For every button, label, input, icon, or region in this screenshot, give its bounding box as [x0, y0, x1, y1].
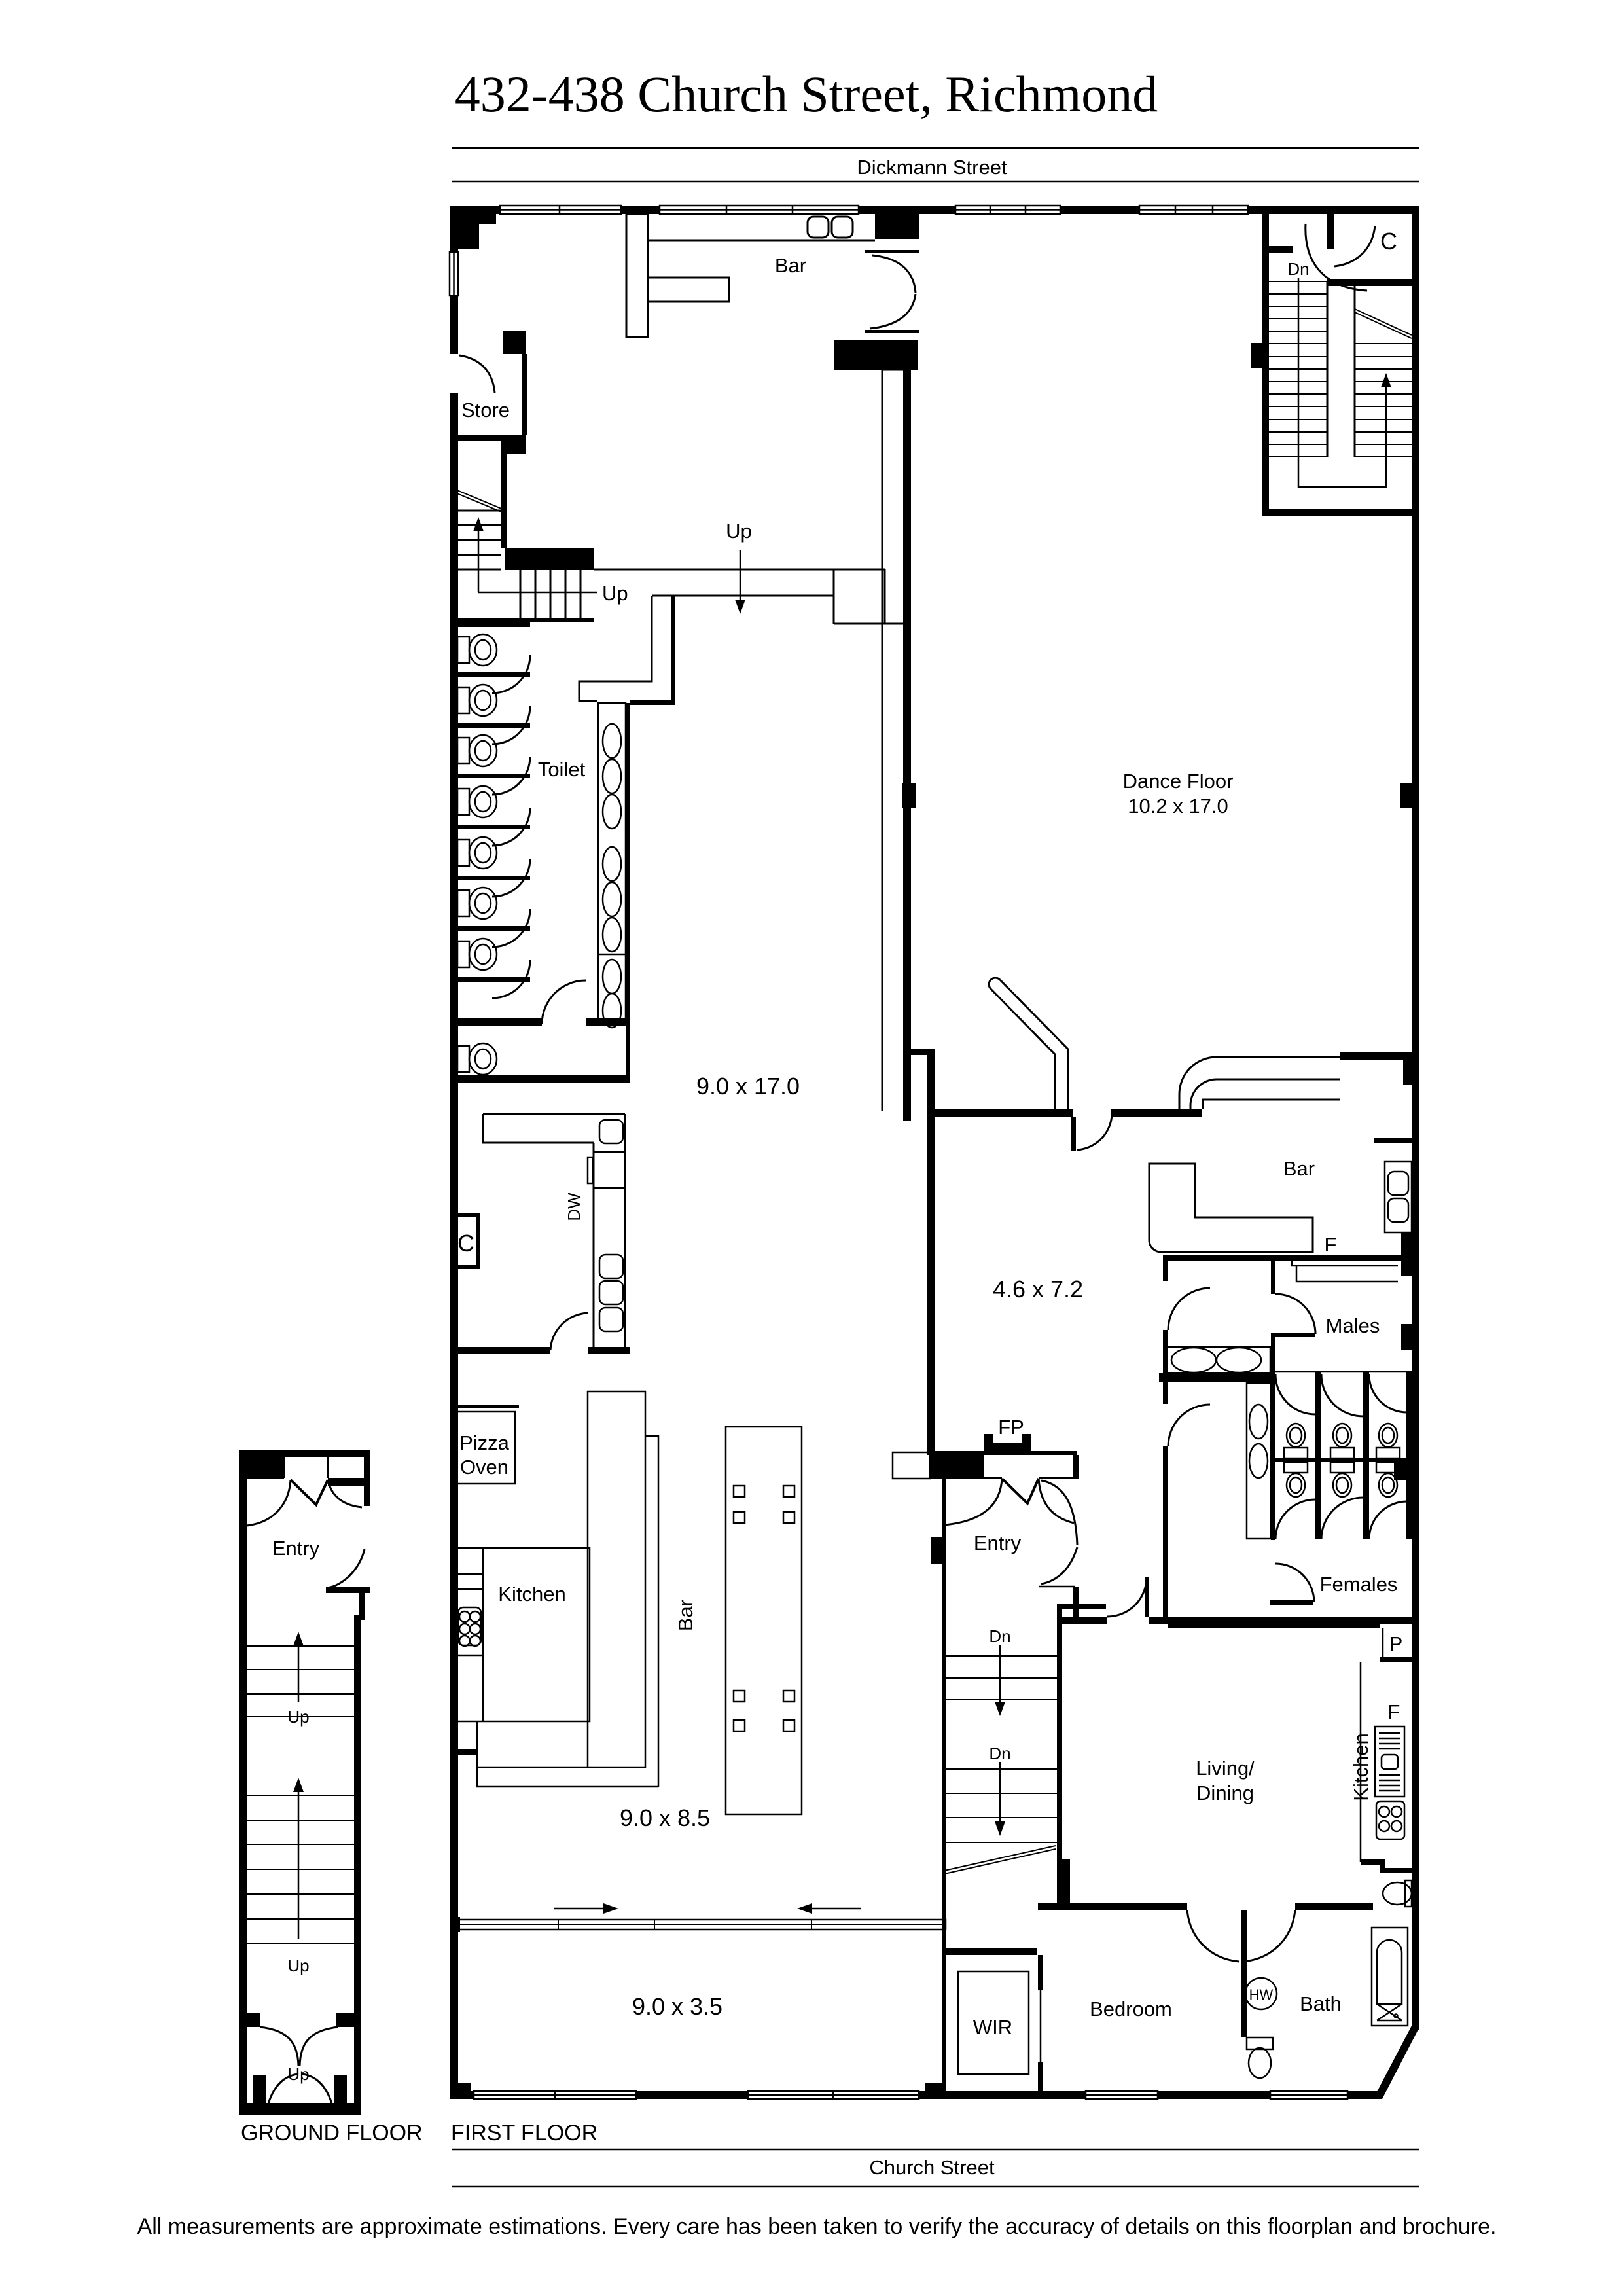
- svg-text:C: C: [457, 1230, 474, 1257]
- svg-text:Females: Females: [1320, 1573, 1398, 1596]
- svg-text:Entry: Entry: [974, 1532, 1022, 1554]
- svg-text:Up: Up: [602, 582, 628, 605]
- svg-text:Up: Up: [726, 520, 752, 543]
- svg-text:DW: DW: [564, 1193, 584, 1221]
- svg-text:Kitchen: Kitchen: [1349, 1733, 1372, 1801]
- svg-text:All measurements are approxima: All measurements are approximate estimat…: [137, 2214, 1497, 2239]
- svg-text:Store: Store: [461, 399, 510, 422]
- svg-text:4.6 x 7.2: 4.6 x 7.2: [993, 1276, 1083, 1302]
- svg-text:WIR: WIR: [973, 2016, 1012, 2039]
- svg-text:P: P: [1389, 1632, 1403, 1655]
- svg-text:F: F: [1388, 1700, 1400, 1723]
- svg-text:Bar: Bar: [674, 1600, 697, 1631]
- svg-text:Bar: Bar: [1283, 1157, 1315, 1180]
- svg-text:Church Street: Church Street: [869, 2156, 995, 2179]
- svg-text:Dn: Dn: [1287, 259, 1309, 279]
- svg-text:F: F: [1325, 1233, 1337, 1256]
- svg-text:9.0 x 8.5: 9.0 x 8.5: [620, 1804, 710, 1831]
- svg-text:432-438 Church Street, Richmon: 432-438 Church Street, Richmond: [455, 65, 1158, 122]
- svg-text:Entry: Entry: [272, 1537, 320, 1560]
- svg-text:C: C: [1380, 228, 1397, 255]
- svg-text:Males: Males: [1326, 1314, 1380, 1337]
- svg-text:HW: HW: [1249, 1986, 1274, 2003]
- svg-text:Dn: Dn: [989, 1626, 1010, 1646]
- svg-text:Oven: Oven: [460, 1456, 508, 1479]
- svg-text:Dickmann Street: Dickmann Street: [857, 156, 1007, 179]
- svg-text:Up: Up: [287, 1956, 309, 1975]
- svg-text:FIRST FLOOR: FIRST FLOOR: [451, 2121, 597, 2145]
- svg-text:Kitchen: Kitchen: [498, 1583, 565, 1605]
- svg-text:9.0 x 3.5: 9.0 x 3.5: [632, 1993, 722, 2020]
- svg-text:Dining: Dining: [1196, 1782, 1254, 1804]
- svg-text:Bedroom: Bedroom: [1090, 1998, 1172, 2020]
- svg-text:Toilet: Toilet: [538, 758, 586, 781]
- svg-text:Up: Up: [287, 1707, 309, 1727]
- svg-text:Dance Floor: Dance Floor: [1123, 770, 1234, 793]
- svg-text:GROUND FLOOR: GROUND FLOOR: [241, 2121, 423, 2145]
- svg-text:Bath: Bath: [1300, 1992, 1342, 2015]
- svg-text:10.2 x 17.0: 10.2 x 17.0: [1128, 795, 1228, 817]
- svg-text:9.0 x 17.0: 9.0 x 17.0: [696, 1073, 800, 1100]
- svg-text:FP: FP: [998, 1416, 1024, 1439]
- svg-text:Bar: Bar: [775, 254, 806, 277]
- svg-text:Living/: Living/: [1196, 1757, 1255, 1780]
- svg-text:Dn: Dn: [989, 1744, 1010, 1763]
- svg-text:Pizza: Pizza: [459, 1431, 510, 1454]
